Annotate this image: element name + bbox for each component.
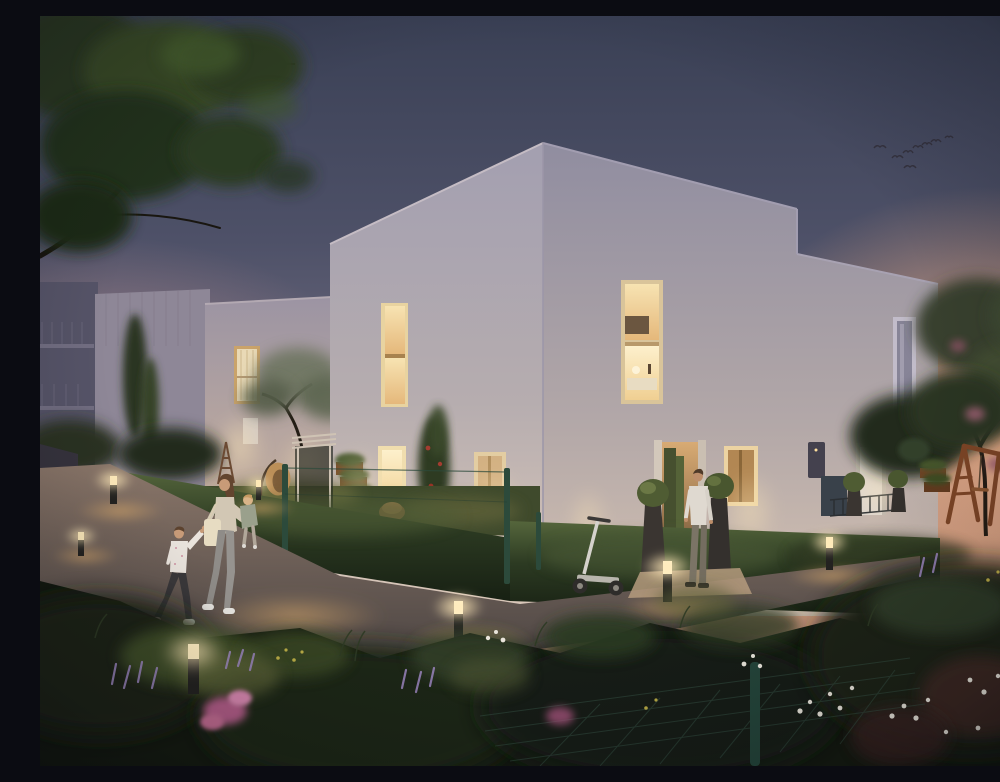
vignette-overlay bbox=[40, 16, 1000, 766]
scene-canvas bbox=[40, 16, 1000, 766]
architectural-render bbox=[40, 16, 1000, 766]
